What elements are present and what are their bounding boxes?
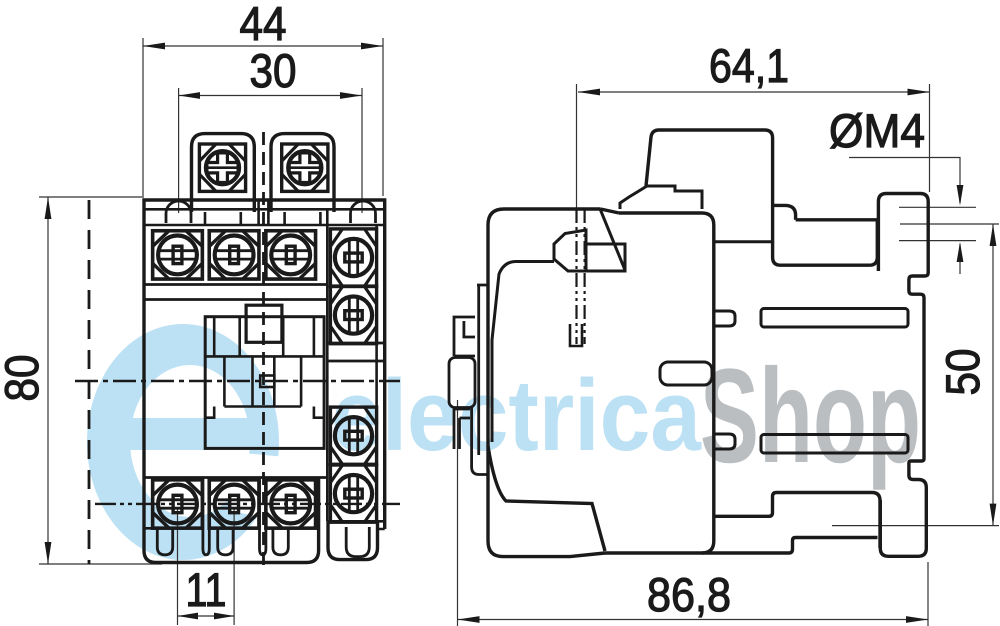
svg-text:electrica: electrica	[331, 360, 702, 472]
svg-text:80: 80	[0, 355, 48, 402]
svg-text:Shop: Shop	[700, 342, 921, 491]
svg-text:30: 30	[250, 44, 297, 97]
svg-text:44: 44	[240, 0, 287, 50]
svg-text:64,1: 64,1	[709, 39, 789, 92]
svg-text:11: 11	[186, 563, 227, 616]
svg-text:86,8: 86,8	[647, 568, 731, 621]
svg-text:ØM4: ØM4	[829, 104, 925, 157]
svg-text:50: 50	[936, 349, 989, 396]
